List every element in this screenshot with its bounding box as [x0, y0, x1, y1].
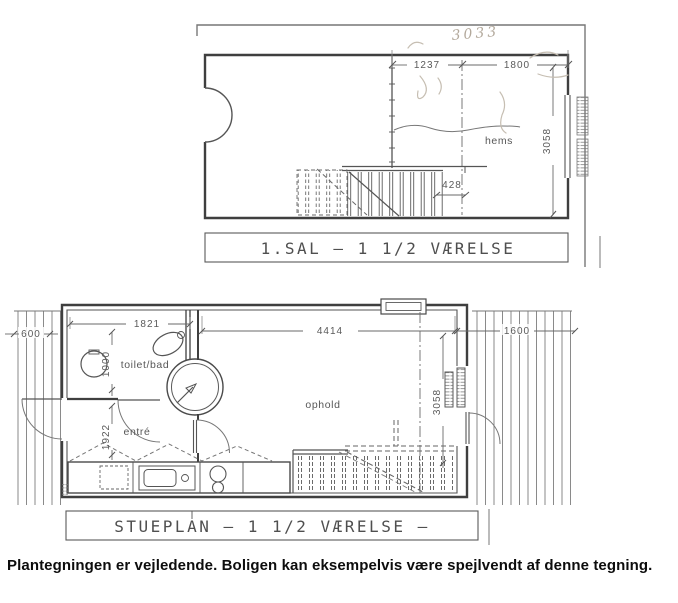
stair-treads	[296, 455, 453, 492]
terrace-hatch-right	[472, 311, 572, 505]
pencil-scribble	[418, 76, 442, 99]
ground-floor-plan: 600 1821 1000 1922 4414	[5, 299, 578, 545]
kitchen-sink	[139, 466, 195, 490]
shower-fixture	[167, 359, 223, 415]
kitchen-stove	[210, 466, 226, 493]
terrace-hatch-left	[14, 311, 62, 505]
right-terrace	[472, 311, 572, 505]
first-floor-title-block: 1.SAL – 1 1/2 VÆRELSE	[205, 233, 568, 262]
first-floor-stairs	[297, 166, 487, 216]
window-sill-hatch	[577, 139, 588, 176]
dim-right-terrace: 1600	[504, 326, 530, 337]
dim-hall-depth: 1922	[101, 424, 112, 450]
wall-end-hatch	[62, 484, 68, 497]
floor-plan-drawing: 1237 1800 3058 428 hems 3033 1.SAL – 1 1…	[0, 0, 678, 555]
room-label-living: ophold	[305, 399, 340, 411]
first-floor-plan: 1237 1800 3058 428 hems 3033 1.SAL – 1 1…	[197, 24, 600, 268]
handwritten-note: 3033	[451, 24, 500, 44]
hems-partition	[389, 56, 395, 168]
window-sill-hatch	[577, 97, 588, 135]
appliance-dashed	[100, 466, 128, 489]
dim-loft-width-right: 1800	[504, 60, 530, 71]
disclaimer-caption: Plantegningen er vejledende. Boligen kan…	[7, 557, 673, 574]
scanned-floor-plan-page: 1237 1800 3058 428 hems 3033 1.SAL – 1 1…	[0, 0, 678, 603]
room-label-hall: entré	[124, 426, 151, 438]
room-label-hems: hems	[485, 135, 513, 147]
handwritten-annotations: 3033	[408, 24, 568, 133]
pencil-scribble	[408, 42, 423, 48]
ground-floor-title-block: STUEPLAN – 1 1/2 VÆRELSE –	[66, 509, 489, 545]
dim-bathroom-depth: 1000	[101, 351, 112, 377]
dim-living-width: 4414	[317, 326, 343, 337]
dim-living-depth: 3058	[432, 389, 443, 415]
loft-overhead-outline	[345, 420, 457, 451]
ground-floor-title: STUEPLAN – 1 1/2 VÆRELSE –	[114, 517, 429, 536]
ground-floor-stairs	[293, 450, 453, 493]
top-window	[381, 299, 426, 314]
left-terrace	[14, 311, 62, 505]
toilet-fixture	[149, 328, 187, 361]
pencil-scribble	[500, 92, 506, 133]
dim-loft-width-left: 1237	[414, 60, 440, 71]
door-arc	[197, 420, 230, 453]
dim-loft-depth: 3058	[542, 128, 553, 154]
wall-niche-arc	[205, 88, 232, 142]
dim-bathroom-width: 1821	[134, 319, 160, 330]
stair-treads-hidden	[297, 170, 347, 215]
room-label-bathroom: toilet/bad	[121, 359, 170, 371]
kitchen-counter	[62, 443, 290, 497]
dim-stair-offset: 428	[442, 180, 462, 191]
dim-left-terrace: 600	[21, 329, 41, 340]
first-floor-title: 1.SAL – 1 1/2 VÆRELSE	[261, 239, 516, 258]
